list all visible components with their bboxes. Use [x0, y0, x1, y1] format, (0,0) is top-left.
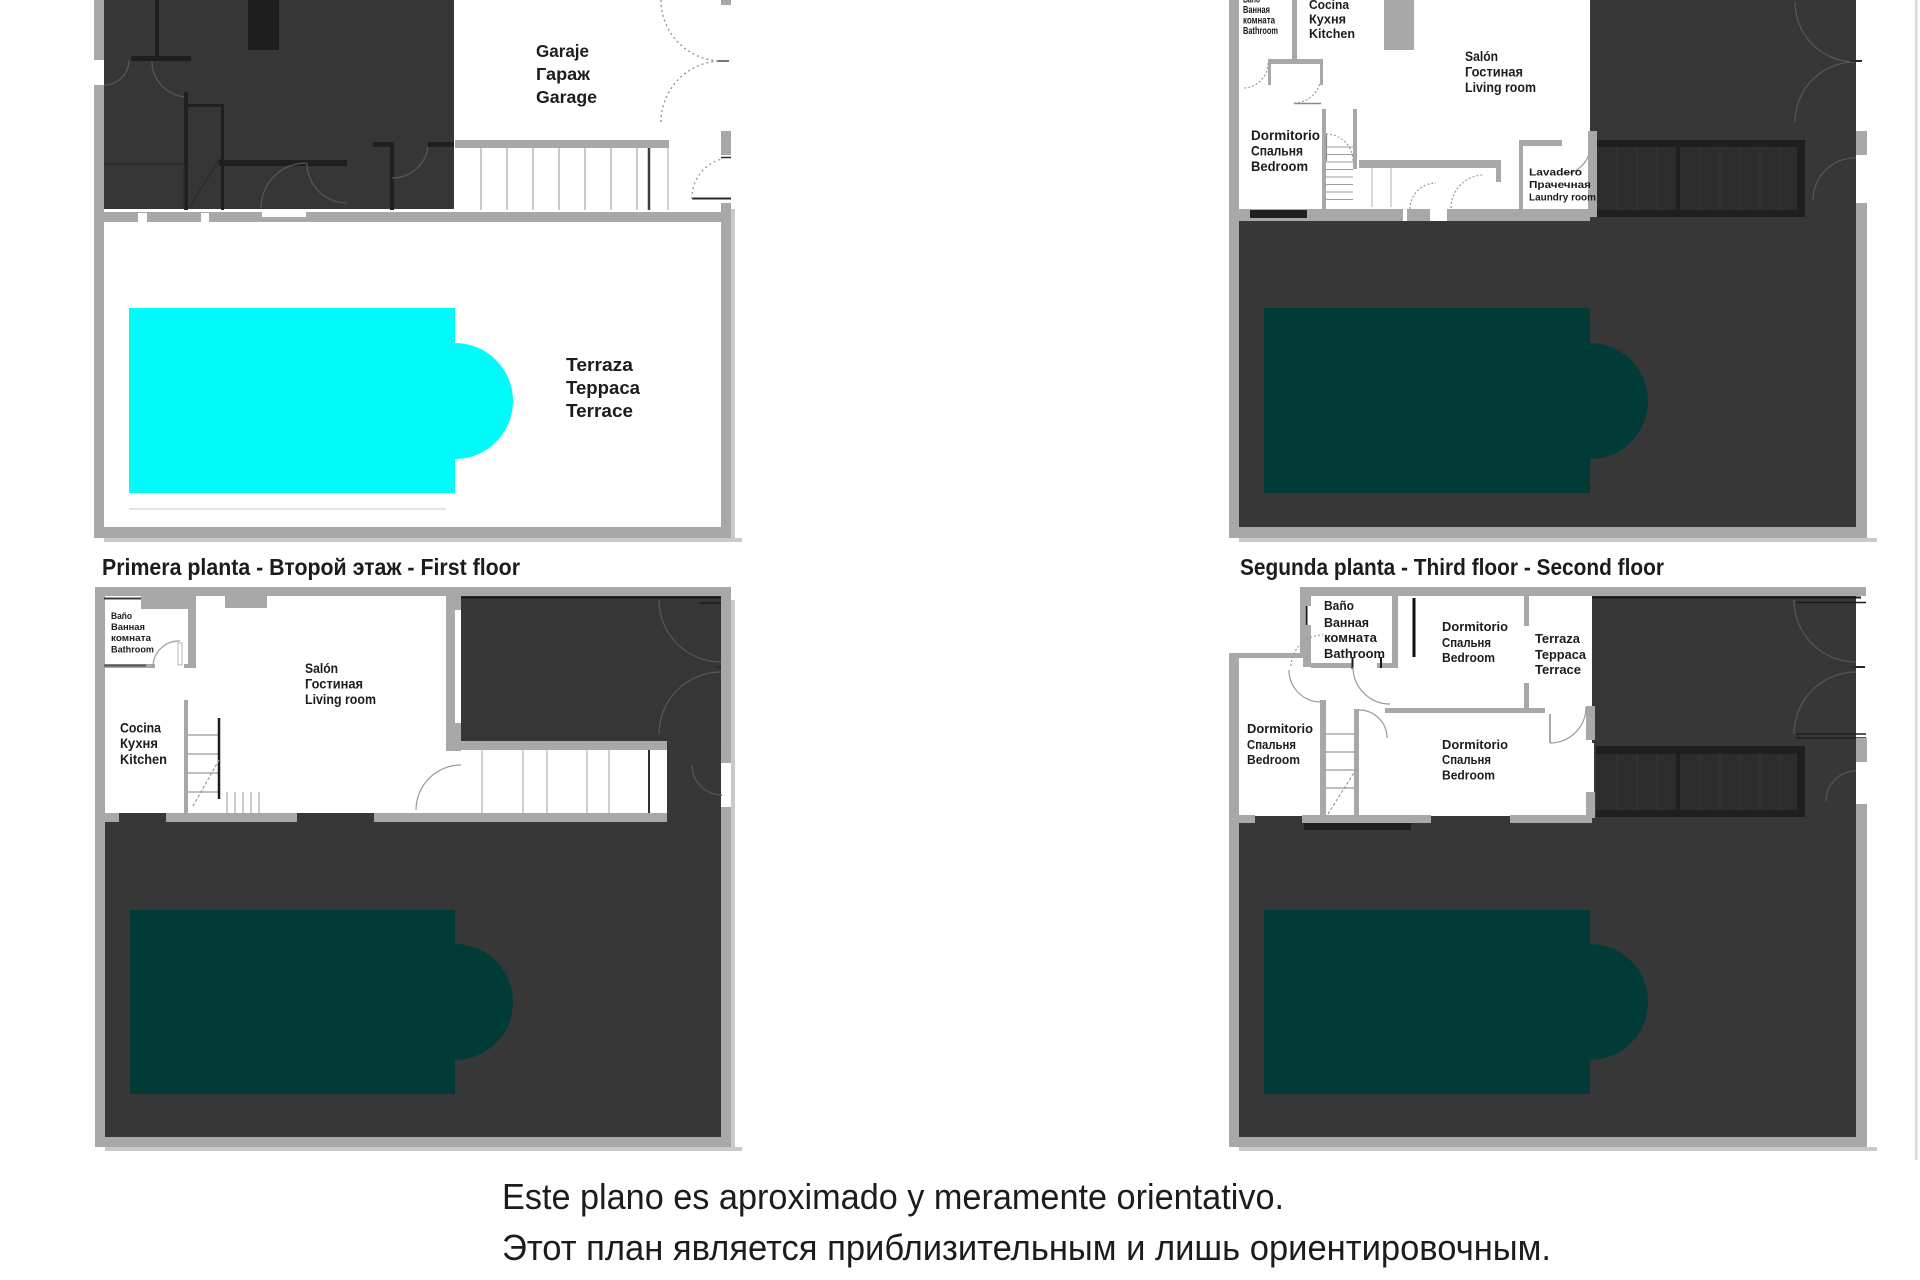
svg-text:Гостиная: Гостиная — [305, 677, 363, 692]
svg-text:Спальня: Спальня — [1442, 753, 1491, 767]
svg-text:комната: комната — [1324, 630, 1378, 645]
svg-text:комната: комната — [111, 633, 152, 643]
svg-text:Terraza: Terraza — [566, 354, 634, 375]
svg-text:Terrace: Terrace — [1535, 663, 1581, 677]
svg-text:Living room: Living room — [305, 692, 376, 707]
svg-text:Ванная: Ванная — [1243, 5, 1270, 16]
svg-text:Este plano es aproximado y mer: Este plano es aproximado y meramente ori… — [502, 1176, 1284, 1217]
svg-text:Garage: Garage — [536, 87, 597, 107]
svg-text:Salón: Salón — [1465, 49, 1498, 64]
svg-text:Bedroom: Bedroom — [1442, 769, 1495, 783]
svg-text:Segunda planta - Third floor -: Segunda planta - Third floor - Second fl… — [1240, 554, 1664, 580]
svg-text:Terrace: Terrace — [566, 400, 633, 421]
svg-text:Прачечная: Прачечная — [1529, 180, 1591, 191]
svg-text:Terraza: Terraza — [1535, 632, 1581, 646]
svg-text:Baño: Baño — [111, 611, 132, 621]
svg-text:Dormitorio: Dormitorio — [1442, 738, 1508, 752]
svg-text:Lavadero: Lavadero — [1529, 168, 1582, 179]
svg-text:Гараж: Гараж — [536, 64, 591, 84]
svg-text:Спальня: Спальня — [1251, 144, 1303, 159]
svg-text:Bathroom: Bathroom — [1324, 646, 1385, 661]
svg-text:Dormitorio: Dormitorio — [1251, 128, 1320, 143]
svg-text:Cocina: Cocina — [120, 721, 161, 736]
svg-text:Living room: Living room — [1465, 80, 1536, 95]
svg-text:Garaje: Garaje — [536, 41, 589, 61]
svg-text:Гостиная: Гостиная — [1465, 65, 1523, 80]
svg-text:Primera planta - Второй этаж -: Primera planta - Второй этаж - First flo… — [102, 554, 520, 580]
svg-text:Ванная: Ванная — [1324, 615, 1369, 630]
svg-text:Кухня: Кухня — [1309, 12, 1346, 27]
svg-text:Кухня: Кухня — [120, 736, 158, 751]
svg-text:Bedroom: Bedroom — [1442, 651, 1495, 665]
svg-text:Этот план является приблизител: Этот план является приблизительным и лиш… — [502, 1227, 1551, 1268]
svg-text:Laundry room: Laundry room — [1529, 193, 1596, 204]
svg-text:Baño: Baño — [1324, 598, 1354, 613]
svg-text:Dormitorio: Dormitorio — [1442, 620, 1508, 634]
svg-text:Спальня: Спальня — [1442, 636, 1491, 650]
svg-text:Kitchen: Kitchen — [1309, 26, 1355, 41]
svg-text:Bathroom: Bathroom — [1243, 26, 1278, 37]
svg-text:Bedroom: Bedroom — [1247, 753, 1300, 767]
svg-text:Bedroom: Bedroom — [1251, 159, 1308, 174]
svg-text:Teppaca: Teppaca — [566, 377, 641, 398]
svg-text:Dormitorio: Dormitorio — [1247, 722, 1313, 736]
svg-text:Ванная: Ванная — [111, 622, 145, 632]
svg-text:Salón: Salón — [305, 661, 338, 676]
svg-text:Спальня: Спальня — [1247, 738, 1296, 752]
svg-text:Teppaca: Teppaca — [1535, 648, 1587, 662]
svg-text:комната: комната — [1243, 16, 1275, 27]
svg-text:Cocina: Cocina — [1309, 0, 1350, 12]
svg-text:Kitchen: Kitchen — [120, 752, 167, 767]
svg-text:Bathroom: Bathroom — [111, 645, 154, 655]
